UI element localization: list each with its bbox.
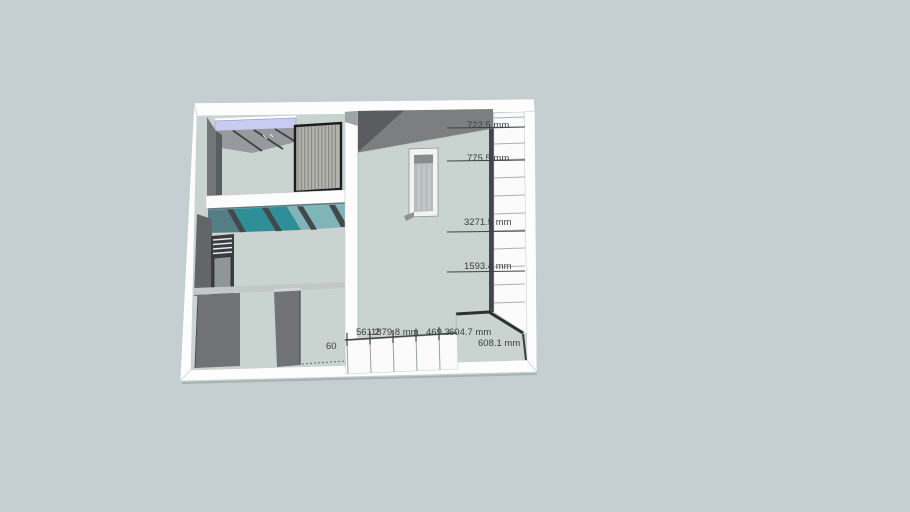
staircase-hatched	[295, 123, 341, 192]
window-glass-top	[414, 155, 433, 164]
left-wall-face	[194, 214, 212, 296]
room-left-wall	[207, 117, 216, 202]
dimension-label: 604.7 mm	[449, 328, 491, 338]
dimension-label: 3271.5 mm	[464, 218, 512, 228]
dimension-label: 775.5 mm	[467, 154, 509, 164]
model-viewport[interactable]: 722.5 mm775.5 mm3271.5 mm1593.4 mm561.21…	[0, 0, 910, 512]
wall-face-b	[274, 291, 300, 368]
dimension-label: 469.3	[426, 328, 450, 338]
model-render	[0, 0, 910, 512]
dimension-label: 60	[326, 342, 337, 352]
center-wall	[345, 111, 358, 341]
room-left-wall-shade	[216, 131, 222, 199]
dimension-label: 608.1 mm	[478, 339, 520, 349]
window	[404, 148, 438, 221]
dimension-label: 1879.8 mm	[371, 328, 419, 338]
dimension-label: 1593.4 mm	[464, 262, 512, 272]
center-wall-band	[345, 111, 358, 341]
wall-face-a	[195, 293, 240, 368]
dimension-label: 722.5 mm	[467, 121, 509, 131]
staircase-bottom-base	[345, 334, 458, 374]
